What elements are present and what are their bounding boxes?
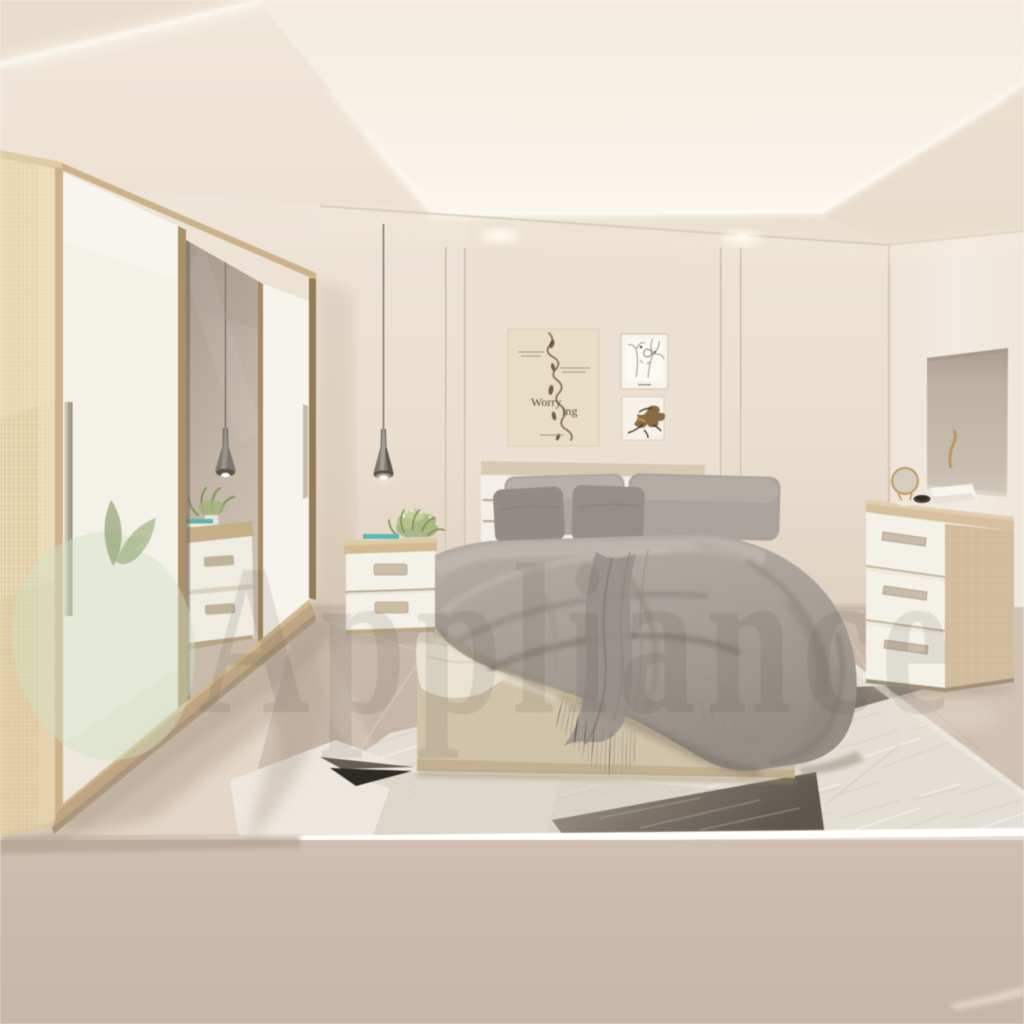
svg-text:Appliance: Appliance — [198, 520, 960, 759]
svg-text:ing: ing — [562, 404, 577, 418]
svg-text:Worry: Worry — [531, 395, 561, 409]
